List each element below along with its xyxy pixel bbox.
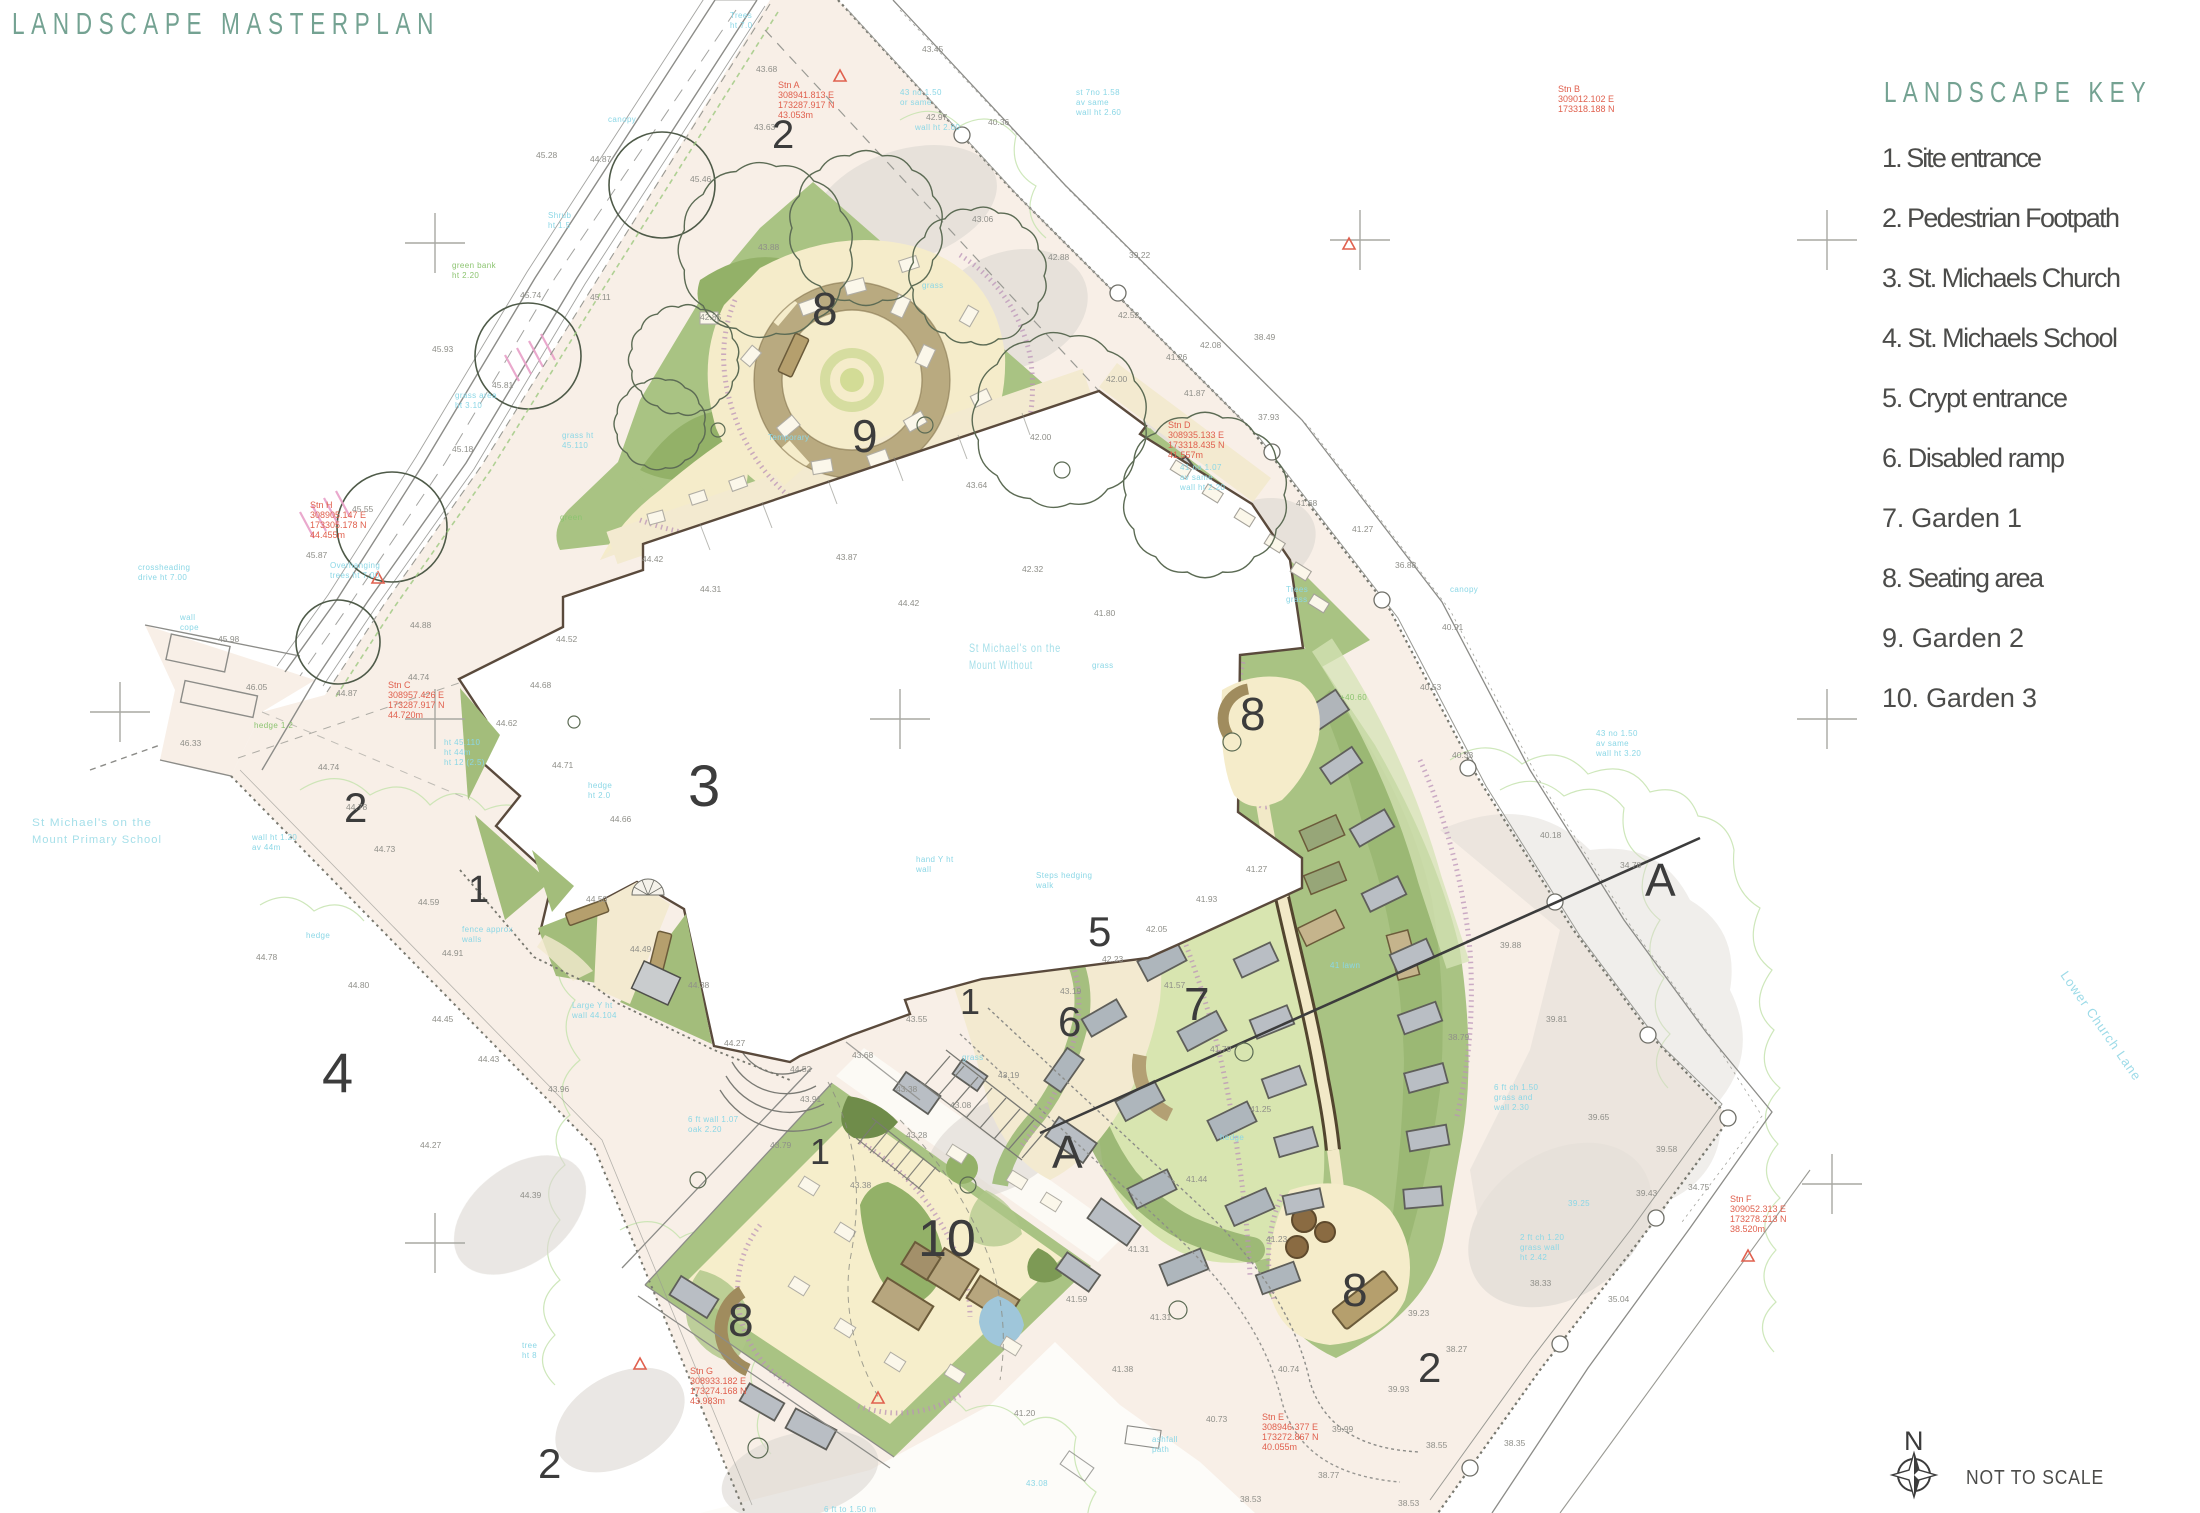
svg-text:43 no 1.50: 43 no 1.50 [1596,729,1638,738]
svg-text:41.38: 41.38 [1112,1364,1134,1374]
svg-text:41.57: 41.57 [1164,980,1186,990]
svg-text:308957.426 E: 308957.426 E [388,690,444,700]
svg-text:wall 2.30: wall 2.30 [1493,1103,1529,1112]
svg-text:Stn A: Stn A [778,80,800,90]
svg-text:38.77: 38.77 [1318,1470,1340,1480]
svg-text:44.455m: 44.455m [310,530,345,540]
svg-text:3: 3 [688,754,720,819]
svg-text:wall ht 2.20: wall ht 2.20 [1179,483,1225,492]
svg-text:44.50: 44.50 [586,894,608,904]
svg-text:38.53: 38.53 [1398,1498,1420,1508]
svg-text:43.63: 43.63 [754,122,776,132]
svg-text:41.44: 41.44 [1186,1174,1208,1184]
svg-text:green: green [560,513,582,522]
svg-text:41.31: 41.31 [1150,1312,1172,1322]
svg-text:ht 8: ht 8 [522,1351,537,1360]
svg-text:Stn D: Stn D [1168,420,1191,430]
svg-text:43.96: 43.96 [548,1084,570,1094]
svg-text:av same: av same [1076,98,1109,107]
svg-text:43.64: 43.64 [966,480,988,490]
svg-text:39.81: 39.81 [1546,1014,1568,1024]
svg-text:44.42: 44.42 [642,554,664,564]
svg-text:drive ht 7.00: drive ht 7.00 [138,573,187,582]
svg-text:43 no 1.50: 43 no 1.50 [900,88,942,97]
svg-text:ht 45.110: ht 45.110 [444,738,481,747]
svg-text:43.19: 43.19 [1060,986,1082,996]
svg-text:8. Seating area: 8. Seating area [1882,563,2045,593]
svg-text:34.78: 34.78 [1620,860,1642,870]
svg-text:46.33: 46.33 [180,738,202,748]
svg-text:Trees: Trees [730,11,752,20]
svg-text:43.68: 43.68 [756,64,778,74]
svg-text:43.45: 43.45 [922,44,944,54]
svg-text:1. Site entrance: 1. Site entrance [1882,143,2042,173]
svg-text:grass wall: grass wall [1520,1243,1560,1252]
svg-text:1: 1 [468,869,489,911]
svg-text:45.110: 45.110 [562,441,588,450]
svg-text:38.49: 38.49 [1254,332,1276,342]
svg-text:44.45: 44.45 [432,1014,454,1024]
svg-text:173274.168 N: 173274.168 N [690,1386,747,1396]
svg-text:10: 10 [918,1210,976,1268]
svg-text:44.52: 44.52 [790,1064,812,1074]
svg-text:ashfall: ashfall [1152,1435,1178,1444]
svg-text:38.35: 38.35 [1504,1438,1526,1448]
svg-text:173305.178 N: 173305.178 N [310,520,367,530]
svg-text:walk: walk [1035,881,1054,890]
svg-text:av same: av same [1180,473,1213,482]
svg-text:39.58: 39.58 [1656,1144,1678,1154]
svg-text:45.11: 45.11 [590,292,611,302]
svg-text:6 ft wall 1.07: 6 ft wall 1.07 [688,1115,739,1124]
svg-text:6: 6 [1058,998,1081,1045]
svg-text:tree: tree [522,1341,538,1350]
svg-text:st 7no 1.58: st 7no 1.58 [1076,88,1120,97]
svg-text:9. Garden 2: 9. Garden 2 [1882,623,2024,653]
svg-text:43.983m: 43.983m [690,1396,725,1406]
svg-text:oak 2.20: oak 2.20 [688,1125,722,1134]
svg-text:39.23: 39.23 [1408,1308,1430,1318]
svg-text:42.23: 42.23 [1102,954,1124,964]
svg-text:ht 2.0: ht 2.0 [588,791,611,800]
svg-text:41.23: 41.23 [1266,1234,1288,1244]
svg-text:Mount Primary School: Mount Primary School [32,834,162,846]
svg-text:1: 1 [960,981,980,1022]
svg-text:8: 8 [812,283,838,335]
svg-text:hand Y ht: hand Y ht [916,855,954,864]
svg-text:Overhanging: Overhanging [330,561,380,570]
svg-text:43.88: 43.88 [758,242,780,252]
svg-text:2: 2 [538,1440,561,1487]
svg-text:wall: wall [179,613,195,622]
svg-text:39.88: 39.88 [1500,940,1522,950]
svg-text:44.71: 44.71 [552,760,574,770]
svg-text:44.80: 44.80 [348,980,370,990]
svg-text:308933.182 E: 308933.182 E [690,1376,746,1386]
svg-text:wall ht 2.60: wall ht 2.60 [1075,108,1121,117]
svg-text:45.18: 45.18 [452,444,474,454]
svg-text:41.27: 41.27 [1246,864,1268,874]
svg-text:44.78: 44.78 [346,802,368,812]
svg-text:42.00: 42.00 [1030,432,1052,442]
svg-text:8: 8 [1342,1264,1368,1316]
svg-text:39.65: 39.65 [1588,1112,1610,1122]
svg-text:41.25: 41.25 [1250,1104,1272,1114]
svg-text:Stn H: Stn H [310,500,333,510]
svg-text:41.31: 41.31 [1128,1244,1150,1254]
svg-text:41.93: 41.93 [1196,894,1218,904]
svg-text:green bank: green bank [452,261,497,270]
svg-text:40.73: 40.73 [1206,1414,1228,1424]
svg-text:44.31: 44.31 [700,584,722,594]
svg-text:hedge: hedge [1220,1133,1244,1142]
svg-text:cope: cope [180,623,199,632]
svg-text:grass ht: grass ht [562,431,594,440]
svg-text:41.557m: 41.557m [1168,450,1203,460]
svg-text:5. Crypt entrance: 5. Crypt entrance [1882,383,2068,413]
svg-text:41.59: 41.59 [1066,1294,1088,1304]
svg-text:ht 2.42: ht 2.42 [1520,1253,1547,1262]
svg-text:8: 8 [728,1294,754,1346]
svg-text:44.27: 44.27 [420,1140,442,1150]
svg-text:43.55: 43.55 [906,1014,928,1024]
svg-text:Trees: Trees [1286,585,1308,594]
svg-text:LANDSCAPE MASTERPLAN: LANDSCAPE MASTERPLAN [12,6,440,41]
svg-text:44.66: 44.66 [610,814,632,824]
svg-text:42.85: 42.85 [700,312,722,322]
svg-text:34.75: 34.75 [1688,1182,1710,1192]
svg-text:44.91: 44.91 [442,948,464,958]
svg-text:308935.133 E: 308935.133 E [1168,430,1224,440]
svg-text:hedge: hedge [588,781,612,790]
svg-text:41 no 1.07: 41 no 1.07 [1180,463,1222,472]
svg-text:3. St. Michaels Church: 3. St. Michaels Church [1882,263,2121,293]
svg-text:ht 12 (2.5): ht 12 (2.5) [444,758,485,767]
svg-text:LANDSCAPE KEY: LANDSCAPE KEY [1884,77,2152,109]
svg-text:40.18: 40.18 [1540,830,1562,840]
svg-text:39.93: 39.93 [1388,1384,1410,1394]
svg-text:44.39: 44.39 [520,1190,542,1200]
svg-text:40.055m: 40.055m [1262,1442,1297,1452]
svg-text:45.98: 45.98 [218,634,240,644]
svg-text:39.25: 39.25 [1568,1199,1590,1208]
svg-text:42.32: 42.32 [1022,564,1044,574]
svg-text:St Michael's on the: St Michael's on the [969,641,1061,655]
svg-text:42.05: 42.05 [1146,924,1168,934]
svg-text:7: 7 [1184,978,1210,1030]
svg-text:grass: grass [1092,661,1114,670]
svg-text:42.08: 42.08 [1200,340,1222,350]
svg-text:grass area: grass area [455,391,497,400]
svg-text:Steps hedging: Steps hedging [1036,871,1092,880]
svg-text:44.42: 44.42 [898,598,920,608]
svg-text:40.36: 40.36 [988,117,1010,127]
svg-text:Stn F: Stn F [1730,1194,1752,1204]
svg-text:308941.813 E: 308941.813 E [778,90,834,100]
svg-text:44.68: 44.68 [530,680,552,690]
svg-text:309052.313 E: 309052.313 E [1730,1204,1786,1214]
svg-text:41.87: 41.87 [1184,388,1206,398]
svg-text:1: 1 [810,1131,830,1172]
svg-text:44.87: 44.87 [590,154,612,164]
svg-text:Stn G: Stn G [690,1366,713,1376]
svg-text:35.04: 35.04 [1608,1294,1630,1304]
svg-text:41.68: 41.68 [1296,498,1318,508]
svg-text:39.22: 39.22 [1129,250,1151,260]
svg-text:44.87: 44.87 [336,688,358,698]
svg-text:or same: or same [900,98,932,107]
svg-text:ht 3.10: ht 3.10 [455,401,482,410]
svg-text:wall ht 3.20: wall ht 3.20 [1595,749,1641,758]
svg-text:Large Y ht: Large Y ht [572,1001,613,1010]
svg-text:42.52: 42.52 [1118,310,1140,320]
svg-text:St Michael's on the: St Michael's on the [32,817,152,829]
svg-text:36.88: 36.88 [1395,560,1417,570]
svg-text:grass and: grass and [1494,1093,1533,1102]
svg-text:40.74: 40.74 [1278,1364,1300,1374]
svg-text:44.74: 44.74 [318,762,340,772]
svg-text:43.38: 43.38 [896,1084,918,1094]
svg-text:43.68: 43.68 [852,1050,874,1060]
svg-text:grass: grass [1286,595,1308,604]
svg-text:44.62: 44.62 [496,718,518,728]
svg-text:fence approx: fence approx [462,925,513,934]
svg-text:308946.377 E: 308946.377 E [1262,1422,1318,1432]
svg-text:38.33: 38.33 [1530,1278,1552,1288]
svg-text:crossheading: crossheading [138,563,190,572]
svg-text:43.19: 43.19 [998,1070,1020,1080]
svg-text:7. Garden 1: 7. Garden 1 [1882,503,2022,533]
svg-text:44.49: 44.49 [630,944,652,954]
svg-text:38.520m: 38.520m [1730,1224,1765,1234]
svg-text:44.720m: 44.720m [388,710,423,720]
svg-text:41 lawn: 41 lawn [1330,961,1360,970]
svg-text:44.59: 44.59 [418,897,440,907]
svg-text:Stn B: Stn B [1558,84,1580,94]
svg-text:44.78: 44.78 [256,952,278,962]
svg-text:173272.867 N: 173272.867 N [1262,1432,1319,1442]
svg-text:hedge: hedge [306,931,330,940]
svg-text:hedge 1.2: hedge 1.2 [254,721,293,730]
svg-text:ht 44m: ht 44m [444,748,471,757]
svg-text:trees ht 7.00: trees ht 7.00 [330,571,380,580]
svg-text:10. Garden 3: 10. Garden 3 [1882,683,2037,713]
svg-text:45.74: 45.74 [520,290,542,300]
svg-text:39.99: 39.99 [1332,1424,1354,1434]
svg-text:42.00: 42.00 [1106,374,1128,384]
svg-text:45.46: 45.46 [690,174,712,184]
svg-text:4. St. Michaels School: 4. St. Michaels School [1882,323,2118,353]
svg-text:6 ft ch 1.50: 6 ft ch 1.50 [1494,1083,1539,1092]
svg-text:44.52: 44.52 [556,634,578,644]
svg-text:38.55: 38.55 [1426,1440,1448,1450]
svg-text:41.80: 41.80 [1094,608,1116,618]
svg-text:43.08: 43.08 [1026,1479,1048,1488]
svg-text:grass: grass [962,1053,984,1062]
svg-text:38.79: 38.79 [1448,1032,1470,1042]
svg-text:ht 1.5: ht 1.5 [548,221,571,230]
svg-text:173278.213 N: 173278.213 N [1730,1214,1787,1224]
svg-text:43.38: 43.38 [850,1180,872,1190]
svg-text:A: A [1052,1126,1083,1178]
svg-text:wall ht 2.60: wall ht 2.60 [914,123,960,132]
svg-text:45.87: 45.87 [306,550,328,560]
svg-text:42.88: 42.88 [1048,252,1070,262]
svg-text:45.81: 45.81 [492,380,514,390]
svg-text:wall 44.104: wall 44.104 [571,1011,617,1020]
svg-text:A: A [1645,854,1676,906]
svg-text:42.97: 42.97 [926,112,948,122]
svg-text:38.53: 38.53 [1240,1494,1262,1504]
svg-text:43.87: 43.87 [836,552,858,562]
svg-text:44.43: 44.43 [478,1054,500,1064]
svg-text:40.53: 40.53 [1420,682,1442,692]
svg-text:46.05: 46.05 [246,682,268,692]
svg-text:43.91: 43.91 [800,1094,822,1104]
svg-text:173287.917 N: 173287.917 N [388,700,445,710]
svg-text:2: 2 [1418,1344,1441,1391]
svg-text:173318.435 N: 173318.435 N [1168,440,1225,450]
svg-text:5: 5 [1088,908,1111,955]
svg-text:4: 4 [322,1041,353,1104]
svg-text:2 ft ch 1.20: 2 ft ch 1.20 [1520,1233,1565,1242]
svg-text:walls: walls [461,935,482,944]
svg-text:173318.188 N: 173318.188 N [1558,104,1615,114]
svg-text:43.053m: 43.053m [778,110,813,120]
svg-text:40.33: 40.33 [1452,750,1474,760]
svg-text:8: 8 [1240,688,1266,740]
svg-text:Stn E: Stn E [1262,1412,1284,1422]
svg-text:45.93: 45.93 [432,344,454,354]
svg-text:43.28: 43.28 [906,1130,928,1140]
svg-text:43.08: 43.08 [950,1100,972,1110]
svg-text:39.43: 39.43 [1636,1188,1658,1198]
svg-text:NOT TO SCALE: NOT TO SCALE [1966,1467,2104,1489]
svg-text:2. Pedestrian Footpath: 2. Pedestrian Footpath [1882,203,2120,233]
svg-text:ht 2.20: ht 2.20 [452,271,479,280]
svg-text:44.88: 44.88 [410,620,432,630]
svg-text:path: path [1152,1445,1169,1454]
svg-text:43.06: 43.06 [972,214,994,224]
svg-text:9: 9 [852,410,878,462]
svg-text:41.26: 41.26 [1166,352,1188,362]
svg-text:wall ht 1.20: wall ht 1.20 [251,833,297,842]
svg-text:canopy: canopy [608,115,636,124]
svg-text:6 ft to 1.50 m: 6 ft to 1.50 m [824,1505,876,1513]
svg-text:38.27: 38.27 [1446,1344,1468,1354]
svg-text:44.27: 44.27 [724,1038,746,1048]
svg-text:av 44m: av 44m [252,843,281,852]
svg-text:44.73: 44.73 [374,844,396,854]
svg-text:av same: av same [1596,739,1629,748]
svg-text:44.38: 44.38 [688,980,710,990]
svg-text:41.20: 41.20 [1014,1408,1036,1418]
svg-text:40.91: 40.91 [1442,622,1464,632]
svg-text:41.27: 41.27 [1352,524,1374,534]
svg-text:Shrub: Shrub [548,211,571,220]
svg-text:44.74: 44.74 [408,672,430,682]
svg-text:309012.102 E: 309012.102 E [1558,94,1614,104]
svg-text:wall: wall [915,865,931,874]
svg-text:canopy: canopy [1450,585,1478,594]
svg-text:ht 7.0: ht 7.0 [730,21,753,30]
svg-text:+40.60: +40.60 [1340,693,1367,702]
svg-text:Temporary: Temporary [768,433,809,442]
svg-text:Mount Without: Mount Without [969,658,1033,672]
svg-text:173287.917 N: 173287.917 N [778,100,835,110]
svg-text:41.79: 41.79 [1210,1044,1232,1054]
svg-text:37.93: 37.93 [1258,412,1280,422]
svg-text:6. Disabled ramp: 6. Disabled ramp [1882,443,2065,473]
svg-text:45.55: 45.55 [352,504,374,514]
svg-text:43.79: 43.79 [770,1140,792,1150]
svg-text:grass: grass [922,281,944,290]
svg-text:45.28: 45.28 [536,150,558,160]
